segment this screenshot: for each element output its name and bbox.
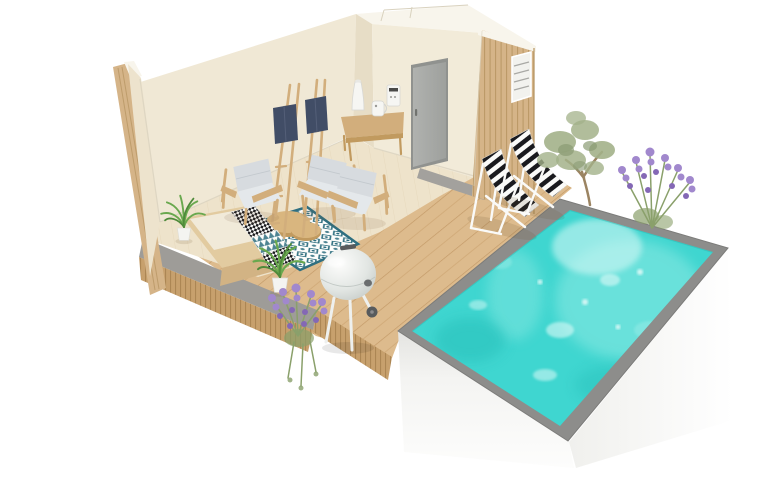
render-stage: Isometric cutaway 3D rendering of a pool… bbox=[0, 0, 780, 481]
vent-window bbox=[512, 52, 531, 102]
door-handle bbox=[415, 109, 417, 116]
scene: Isometric cutaway 3D rendering of a pool… bbox=[0, 0, 780, 481]
coffee-machine bbox=[387, 85, 400, 106]
interior-door bbox=[413, 62, 446, 167]
grill-body bbox=[320, 248, 376, 300]
grill-vent bbox=[364, 280, 372, 287]
